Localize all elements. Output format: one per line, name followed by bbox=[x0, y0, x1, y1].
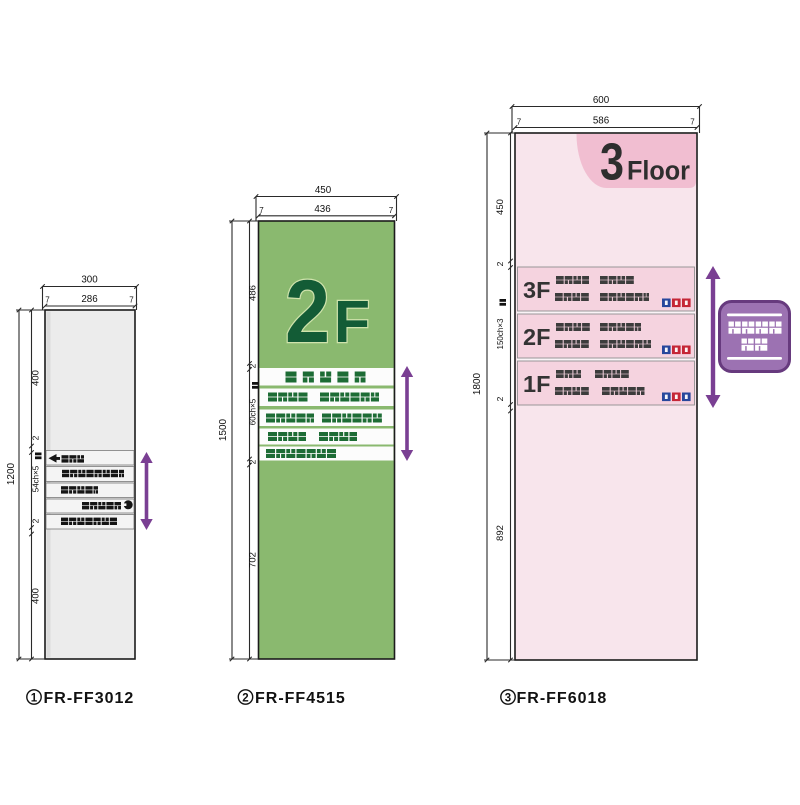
svg-text:2: 2 bbox=[495, 396, 505, 401]
svg-text:7: 7 bbox=[45, 296, 50, 305]
svg-text:2: 2 bbox=[31, 518, 41, 523]
svg-text:7: 7 bbox=[129, 296, 134, 305]
svg-text:450: 450 bbox=[315, 185, 332, 196]
svg-text:60ch×5: 60ch×5 bbox=[249, 398, 258, 425]
svg-text:892: 892 bbox=[495, 525, 506, 541]
svg-text:2: 2 bbox=[248, 459, 258, 464]
svg-text:600: 600 bbox=[593, 95, 610, 106]
svg-text:2: 2 bbox=[495, 261, 505, 266]
svg-text:1500: 1500 bbox=[218, 418, 229, 441]
svg-text:3: 3 bbox=[505, 693, 511, 705]
svg-text:FR-FF6018: FR-FF6018 bbox=[517, 690, 608, 707]
svg-text:150ch×3: 150ch×3 bbox=[496, 318, 505, 349]
svg-text:1: 1 bbox=[31, 693, 38, 705]
svg-text:Floor: Floor bbox=[627, 156, 690, 186]
svg-text:2: 2 bbox=[248, 363, 258, 368]
svg-text:436: 436 bbox=[314, 204, 331, 215]
svg-text:1F: 1F bbox=[523, 371, 550, 397]
svg-text:2: 2 bbox=[285, 261, 330, 361]
svg-text:54ch×5: 54ch×5 bbox=[32, 465, 41, 492]
svg-text:400: 400 bbox=[31, 588, 42, 604]
svg-text:3F: 3F bbox=[523, 277, 550, 303]
svg-text:7: 7 bbox=[389, 206, 394, 215]
svg-text:FR-FF4515: FR-FF4515 bbox=[255, 690, 346, 707]
svg-text:400: 400 bbox=[31, 370, 42, 386]
svg-text:300: 300 bbox=[81, 275, 98, 286]
svg-text:702: 702 bbox=[248, 552, 259, 568]
svg-text:2: 2 bbox=[242, 693, 248, 705]
svg-text:7: 7 bbox=[690, 118, 695, 127]
svg-text:286: 286 bbox=[81, 294, 98, 305]
svg-text:2: 2 bbox=[31, 435, 41, 440]
svg-text:450: 450 bbox=[495, 199, 506, 215]
svg-text:FR-FF3012: FR-FF3012 bbox=[44, 690, 135, 707]
svg-text:586: 586 bbox=[593, 116, 610, 127]
svg-text:1800: 1800 bbox=[472, 372, 483, 395]
svg-text:2F: 2F bbox=[523, 324, 550, 350]
svg-text:3: 3 bbox=[600, 134, 624, 192]
svg-text:F: F bbox=[334, 289, 370, 355]
svg-text:486: 486 bbox=[248, 285, 259, 301]
svg-text:1200: 1200 bbox=[6, 462, 17, 485]
svg-text:7: 7 bbox=[517, 118, 522, 127]
